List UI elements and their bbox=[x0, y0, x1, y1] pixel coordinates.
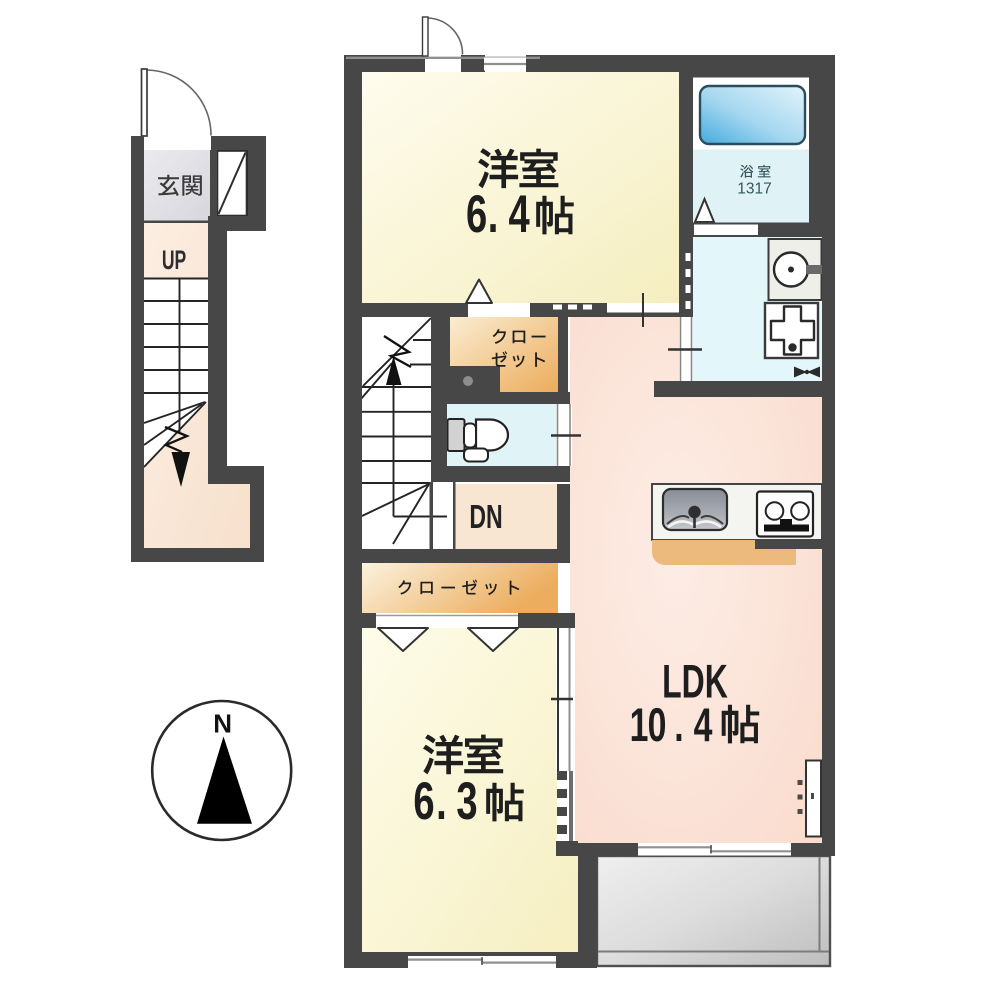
svg-text:N: N bbox=[213, 709, 232, 739]
svg-text:.: . bbox=[488, 184, 499, 244]
svg-text:1: 1 bbox=[630, 698, 649, 751]
svg-text:4: 4 bbox=[694, 698, 713, 751]
svg-text:6: 6 bbox=[413, 771, 434, 831]
svg-text:DN: DN bbox=[469, 499, 502, 536]
svg-text:4: 4 bbox=[508, 184, 529, 244]
svg-text:0: 0 bbox=[648, 698, 667, 751]
svg-text:.: . bbox=[674, 698, 683, 751]
svg-text:.: . bbox=[436, 771, 447, 831]
svg-text:6: 6 bbox=[466, 184, 487, 244]
svg-text:1317: 1317 bbox=[737, 181, 771, 198]
svg-text:UP: UP bbox=[162, 244, 186, 275]
svg-text:3: 3 bbox=[456, 771, 477, 831]
